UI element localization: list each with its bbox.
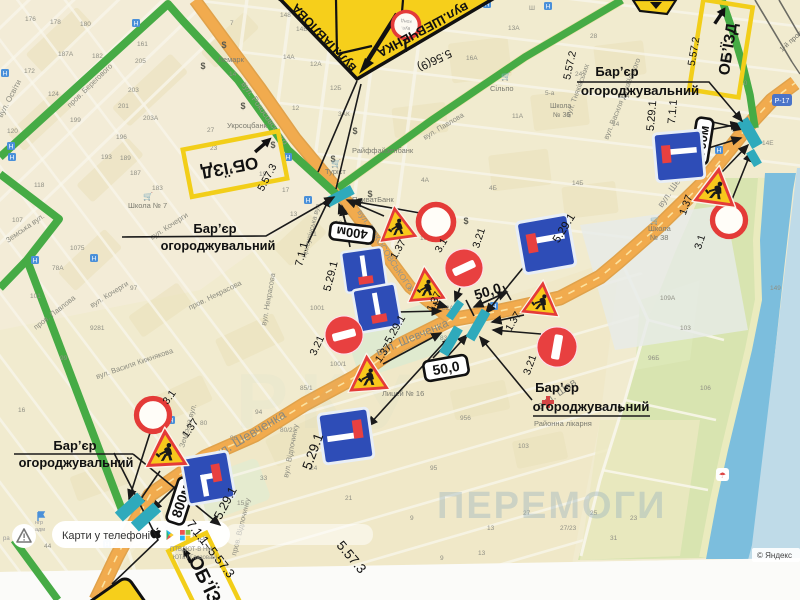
svg-text:17: 17 [282,187,290,194]
svg-text:H: H [9,144,14,151]
svg-text:7: 7 [230,20,234,27]
svg-text:203А: 203А [143,115,159,122]
svg-text:201: 201 [118,103,129,110]
svg-text:Р-17: Р-17 [775,98,790,105]
svg-text:172: 172 [24,68,35,75]
svg-text:12А: 12А [310,61,322,68]
svg-text:33: 33 [260,475,268,482]
svg-text:106: 106 [700,385,711,392]
svg-text:193: 193 [101,154,112,161]
svg-text:21: 21 [345,495,353,502]
svg-text:$: $ [352,126,357,136]
svg-text:Барʼєр: Барʼєр [53,438,96,453]
svg-text:огороджувальний: огороджувальний [19,455,134,470]
svg-text:огороджувальний: огороджувальний [161,238,276,253]
svg-text:187А: 187А [58,51,74,58]
svg-text:14Б: 14Б [572,180,584,187]
svg-text:Барʼєр: Барʼєр [193,221,236,236]
svg-text:5-а: 5-а [545,90,555,97]
svg-text:14Е: 14Е [762,140,774,147]
svg-text:9281: 9281 [90,325,105,332]
svg-text:118: 118 [34,182,45,189]
svg-text:H: H [286,155,291,162]
svg-text:H: H [546,4,551,11]
svg-text:🛒: 🛒 [331,158,341,168]
svg-text:Туріст: Туріст [325,167,346,176]
svg-text:Райффайзенбанк: Райффайзенбанк [352,146,414,155]
svg-text:$: $ [221,40,226,50]
svg-text:182: 182 [92,53,103,60]
svg-text:96Б: 96Б [648,355,660,362]
svg-text:Укрсоцбанк: Укрсоцбанк [227,121,268,130]
svg-text:14А: 14А [283,54,295,61]
svg-text:189: 189 [120,155,131,162]
svg-text:9: 9 [410,515,414,522]
svg-text:187: 187 [130,170,141,177]
svg-text:H: H [10,155,15,162]
svg-text:956: 956 [460,415,471,422]
svg-text:148: 148 [280,12,291,19]
svg-text:13А: 13А [508,25,520,32]
svg-text:нгр: нгр [35,520,43,526]
svg-text:№ 38: № 38 [650,233,668,242]
svg-text:🛒: 🛒 [143,191,153,201]
svg-text:16А: 16А [466,55,478,62]
svg-text:огороджувальний: огороджувальний [533,399,650,414]
svg-text:24: 24 [575,71,583,78]
svg-text:14: 14 [229,71,237,78]
svg-text:107: 107 [12,217,23,224]
svg-text:ПТВДЮТ-В НМ.: ПТВДЮТ-В НМ. [170,547,214,553]
svg-text:11А: 11А [512,113,524,120]
svg-text:13: 13 [290,211,298,218]
svg-text:Школа: Школа [550,103,571,110]
svg-text:Сільпо: Сільпо [490,84,514,93]
svg-text:205: 205 [135,58,146,65]
svg-text:7.1.1: 7.1.1 [666,99,680,124]
svg-text:203: 203 [128,87,139,94]
svg-text:13: 13 [478,550,486,557]
svg-text:ЮТа і Глазовані: ЮТа і Глазовані [173,555,217,561]
svg-text:124: 124 [48,91,59,98]
svg-text:$: $ [367,189,372,199]
svg-text:1001: 1001 [310,305,325,312]
svg-text:15: 15 [237,500,245,507]
svg-text:🛒: 🛒 [501,71,511,81]
svg-text:H: H [92,256,97,263]
svg-text:Школа № 7: Школа № 7 [128,201,167,210]
svg-text:16: 16 [18,407,26,414]
svg-text:☂: ☂ [719,471,726,480]
svg-text:$: $ [240,101,245,111]
svg-text:Барʼєр: Барʼєр [595,64,638,79]
svg-text:H: H [717,148,722,155]
svg-text:12: 12 [292,105,300,112]
svg-text:99: 99 [60,355,68,362]
svg-text:$: $ [200,61,205,71]
svg-text:44: 44 [44,543,52,550]
svg-text:183: 183 [152,185,163,192]
svg-text:Барʼєр: Барʼєр [535,380,579,395]
svg-text:28: 28 [590,33,598,40]
svg-text:12Б: 12Б [330,85,342,92]
svg-text:конд: конд [401,18,412,25]
svg-text:180: 180 [80,21,91,28]
svg-text:1075: 1075 [70,245,85,252]
svg-text:ПЕРЕМОГИ: ПЕРЕМОГИ [437,485,666,527]
svg-text:109А: 109А [660,295,676,302]
svg-text:H: H [3,71,8,78]
svg-text:14: 14 [612,121,620,128]
svg-text:178: 178 [50,19,61,26]
svg-text:$: $ [463,216,468,226]
svg-text:27: 27 [207,127,215,134]
svg-text:97: 97 [130,285,138,292]
svg-text:176: 176 [25,16,36,23]
svg-text:95: 95 [430,465,438,472]
svg-text:196: 196 [116,134,127,141]
svg-text:огороджувальний: огороджувальний [581,83,699,98]
svg-text:ра: ра [3,536,10,542]
svg-text:4Б: 4Б [489,185,497,192]
svg-text:H: H [33,258,38,265]
svg-text:Лемарк: Лемарк [218,55,245,64]
svg-text:101: 101 [30,293,41,300]
svg-text:© Яндекс: © Яндекс [757,551,792,560]
svg-text:Школа: Школа [648,224,672,233]
svg-text:адм: адм [35,527,45,533]
svg-text:103: 103 [680,325,691,332]
svg-text:161: 161 [137,41,148,48]
svg-text:🛒: 🛒 [650,215,660,225]
svg-text:№ 36: № 36 [553,112,570,119]
svg-text:Районна лікарня: Районна лікарня [534,419,592,428]
svg-text:149: 149 [770,285,781,292]
svg-text:$: $ [270,140,275,150]
svg-text:H: H [306,198,311,205]
svg-text:31: 31 [610,535,618,542]
svg-text:120: 120 [7,128,18,135]
svg-text:H: H [134,21,139,28]
svg-text:Ш: Ш [529,5,535,12]
svg-text:4А: 4А [421,177,430,184]
svg-text:9: 9 [440,555,444,562]
svg-text:Карти у телефоні: Карти у телефоні [62,530,150,542]
svg-text:103: 103 [518,443,529,450]
svg-text:199: 199 [70,117,81,124]
svg-text:78А: 78А [52,265,64,272]
